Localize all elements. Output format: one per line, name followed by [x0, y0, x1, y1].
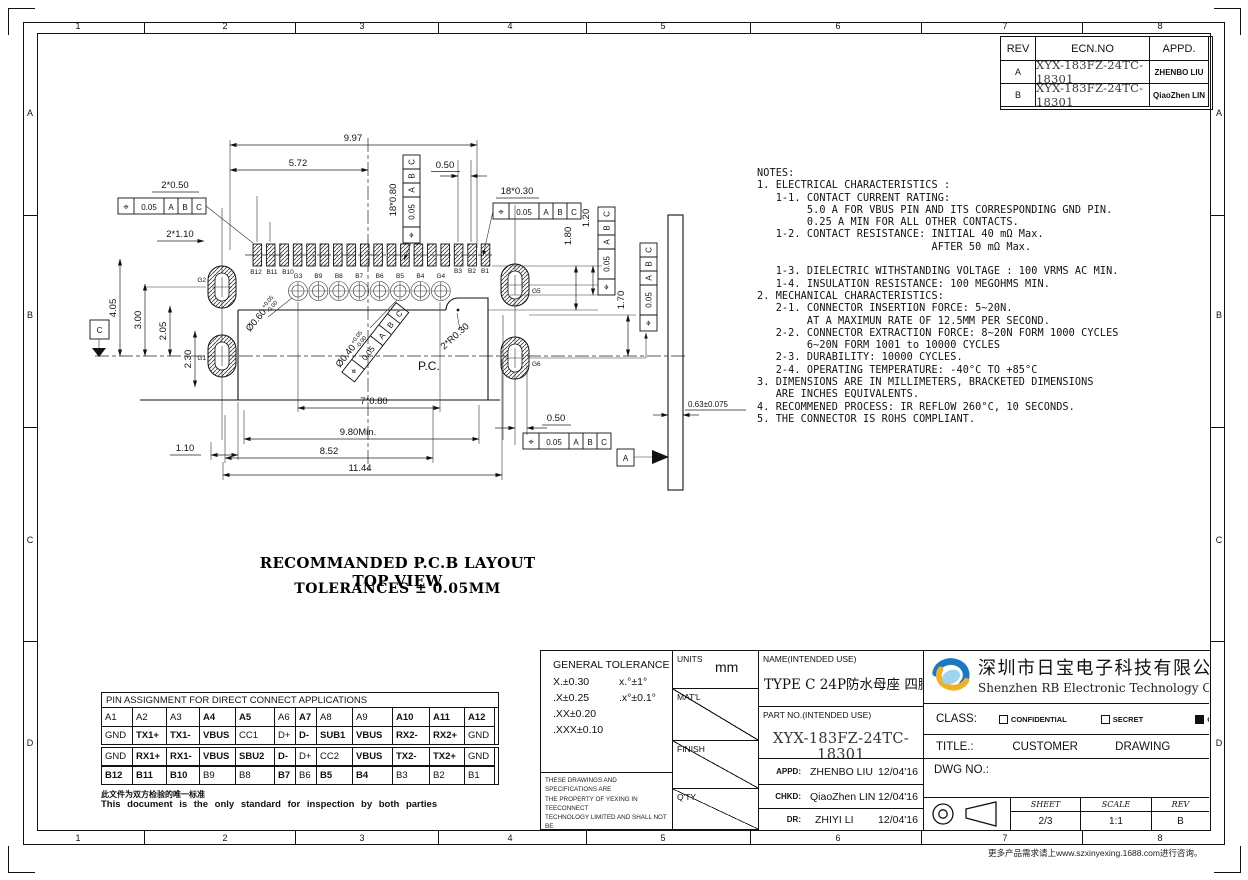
- pin-cell: A1: [102, 708, 133, 726]
- class-option-label: GENERAL: [1207, 715, 1209, 724]
- title-row: TITLE.: CUSTOMER DRAWING: [924, 735, 1209, 759]
- part-number-cell: PART NO.(INTENDED USE) XYX-183FZ-24TC-18…: [759, 707, 924, 759]
- fcf-a: A: [645, 275, 654, 281]
- pin-cell: B1: [465, 766, 495, 784]
- pin-cell: B4: [353, 766, 393, 784]
- checked-date: 12/04'16: [878, 791, 918, 803]
- zone-tick: [750, 22, 751, 33]
- zone-col-label: 8: [1150, 21, 1170, 31]
- pin-cell: GND: [465, 748, 495, 766]
- zone-col-label: 7: [995, 21, 1015, 31]
- datum-c-flag: C: [90, 320, 109, 357]
- zone-tick: [295, 831, 296, 845]
- pin-cell: B2: [430, 766, 465, 784]
- datum-a-flag: A: [617, 449, 669, 466]
- dim-4.05: 4.05: [108, 299, 119, 318]
- checked-name: QiaoZhen LIN: [810, 791, 875, 803]
- pin-cell: B11: [133, 766, 167, 784]
- zone-tick: [1211, 427, 1225, 428]
- fcf-frame: ⌖ 0.05 A B C: [118, 198, 206, 214]
- pin-cell: GND: [102, 748, 133, 766]
- checked-row: CHKD: QiaoZhen LIN 12/04'16: [759, 785, 924, 809]
- pin-cell: A6: [275, 708, 296, 726]
- smt-pad: [253, 244, 262, 266]
- footer-note: 更多产品需求请上www.szxinyexing.1688.com进行咨询。: [988, 847, 1212, 859]
- pin-cell: B6: [296, 766, 317, 784]
- drawn-row: DR: ZHIYI LI 12/04'16: [759, 809, 924, 830]
- position-symbol: ⌖: [123, 202, 129, 213]
- fcf-a: A: [603, 239, 612, 245]
- pin-cell: VBUS: [353, 748, 393, 766]
- fcf-b: B: [645, 261, 654, 266]
- pin-cell: B8: [236, 766, 275, 784]
- rev-value: A: [1001, 61, 1036, 84]
- zone-tick: [586, 22, 587, 33]
- zone-row-label: C: [1213, 535, 1225, 545]
- zone-tick: [1082, 831, 1083, 845]
- class-label: CLASS:: [936, 713, 977, 725]
- zone-row-label: B: [24, 310, 36, 320]
- zone-col-label: 1: [68, 833, 88, 843]
- rev-cell: REV B: [1152, 798, 1209, 830]
- pin-cell: B3: [393, 766, 430, 784]
- checkbox-filled-icon: [1195, 715, 1204, 724]
- smt-pad: [401, 244, 410, 266]
- tolerance-value: .XX±0.20: [553, 706, 619, 722]
- smt-pad: [454, 244, 463, 266]
- pin-cell: D-: [296, 726, 317, 744]
- pin-cell: A3: [167, 708, 200, 726]
- fcf-tol: 0.05: [603, 256, 612, 272]
- corner-mark: [1214, 846, 1241, 873]
- pin-cell: VBUS: [200, 726, 236, 744]
- pin-cell: A12: [465, 708, 495, 726]
- dim-1.20: 1.20: [581, 209, 592, 228]
- zone-row-label: A: [24, 108, 36, 118]
- zone-tick: [921, 831, 922, 845]
- hole-label: B9: [314, 273, 322, 280]
- position-symbol: ⌖: [498, 207, 504, 218]
- dim-0.63: 0.63±0.075: [688, 400, 729, 409]
- pin-cell: B5: [317, 766, 353, 784]
- smt-pad: [428, 244, 437, 266]
- fcf-frame: ⌖ 0.05 A B C: [523, 433, 611, 449]
- zone-col-label: 2: [215, 21, 235, 31]
- smt-pad: [441, 244, 450, 266]
- pin-cell: SBU2: [236, 748, 275, 766]
- fcf-b: B: [385, 320, 395, 330]
- scale-cell: SCALE 1:1: [1081, 798, 1152, 830]
- name-label: NAME(INTENDED USE): [763, 654, 857, 664]
- dim-0.50-bottom: 0.50: [547, 413, 566, 424]
- revision-table: REV ECN.NO APPD. A XYX-183FZ-24TC-18301 …: [1000, 36, 1213, 110]
- zone-tick: [586, 831, 587, 845]
- dim-11.44: 11.44: [348, 463, 371, 474]
- legal-notice-cell: THESE DRAWINGS AND SPECIFICATIONS ARE TH…: [541, 773, 673, 830]
- class-row: CLASS: CONFIDENTIAL SECRET GENERAL: [924, 704, 1209, 735]
- pin-cell: TX1+: [133, 726, 167, 744]
- smt-pad: [468, 244, 477, 266]
- fcf-tol: 0.05: [408, 204, 417, 220]
- through-hole-row: [289, 282, 451, 301]
- general-tolerance-cell: GENERAL TOLERANCE X.±0.30 x.°±1° .X±0.25…: [541, 651, 673, 773]
- fcf-tol: 0.05: [516, 208, 532, 217]
- checked-label: CHKD:: [759, 792, 801, 801]
- smt-pad: [347, 244, 356, 266]
- fcf-c: C: [601, 438, 607, 447]
- smt-pad: [360, 244, 369, 266]
- name-cell: NAME(INTENDED USE) TYPE C 24P防水母座 四脚DIP: [759, 651, 924, 707]
- dim-2xR0.30: 2*R0.30: [439, 321, 472, 352]
- company-name-cn: 深圳市日宝电子科技有限公司: [978, 654, 1209, 680]
- units-value: mm: [715, 659, 738, 675]
- hole-label: B8: [335, 273, 343, 280]
- pin-cell: RX2-: [393, 726, 430, 744]
- dim-9.80min: 9.80Min.: [340, 427, 376, 438]
- zone-col-label: 4: [500, 21, 520, 31]
- general-tolerance-title: GENERAL TOLERANCE: [553, 659, 672, 671]
- zone-col-label: 3: [352, 21, 372, 31]
- zone-tick: [144, 831, 145, 845]
- fcf-a: A: [573, 438, 579, 447]
- pin-cell: D-: [275, 748, 296, 766]
- ecn-value: XYX-183FZ-24TC-18301: [1036, 84, 1150, 107]
- zone-tick: [1211, 641, 1225, 642]
- fcf-a: A: [543, 208, 549, 217]
- pin-cell: B7: [275, 766, 296, 784]
- zone-col-label: 6: [828, 21, 848, 31]
- pin-cell: B10: [167, 766, 200, 784]
- hole-label: B4: [416, 273, 424, 280]
- pin-cell: A8: [317, 708, 353, 726]
- datum-c-label: C: [97, 326, 103, 335]
- smt-pad: [293, 244, 302, 266]
- pin-assignment-table: PIN ASSIGNMENT FOR DIRECT CONNECT APPLIC…: [101, 692, 499, 785]
- smt-pad: [307, 244, 316, 266]
- material-cell: MAT'L: [673, 689, 759, 741]
- pcb-layout-drawing: B12 B11 B10 B3 B2 B1 G3 B9 B8 B7 B6 B5 B…: [40, 110, 750, 550]
- position-symbol: ⌖: [407, 232, 418, 238]
- tolerance-value: X.±0.30: [553, 674, 619, 690]
- smt-pad: [320, 244, 329, 266]
- checkbox-empty-icon: [999, 715, 1008, 724]
- hole-label: B6: [376, 273, 384, 280]
- pin-cell: CC2: [317, 748, 353, 766]
- drawn-date: 12/04'16: [878, 814, 918, 826]
- fcf-tol: 0.05: [546, 438, 562, 447]
- zone-row-label: C: [24, 535, 36, 545]
- fcf-b: B: [587, 438, 592, 447]
- pin-cell: A7: [296, 708, 317, 726]
- class-option-general: GENERAL: [1195, 715, 1209, 724]
- corner-mark: [8, 846, 35, 873]
- pad-label: B3: [454, 268, 462, 275]
- name-value: TYPE C 24P防水母座 四脚DIP: [764, 673, 924, 693]
- fcf-frame: ⌖ 0.05 A B C: [493, 203, 581, 219]
- dwg-no-label: DWG NO.:: [934, 764, 989, 776]
- pad-label: B2: [468, 268, 476, 275]
- dim-8.52: 8.52: [320, 446, 339, 457]
- position-symbol: ⌖: [602, 284, 613, 290]
- fcf-a: A: [408, 187, 417, 193]
- fcf-b: B: [408, 173, 417, 178]
- pin-cell: A4: [200, 708, 236, 726]
- zone-tick: [144, 22, 145, 33]
- class-option-label: CONFIDENTIAL: [1011, 715, 1067, 724]
- fcf-a: A: [377, 331, 388, 341]
- pin-cell: A2: [133, 708, 167, 726]
- fcf-c: C: [571, 208, 577, 217]
- scale-label: SCALE: [1081, 798, 1151, 812]
- fcf-c: C: [196, 203, 202, 212]
- zone-row-label: D: [1213, 738, 1225, 748]
- fcf-a: A: [168, 203, 174, 212]
- pin-cell: D+: [296, 748, 317, 766]
- dia-0.60-text: Ø0.60: [244, 307, 269, 334]
- fcf-b: B: [603, 225, 612, 230]
- company-logo: [928, 654, 974, 700]
- notes-text: NOTES: 1. ELECTRICAL CHARACTERISTICS : 1…: [757, 168, 1209, 426]
- pin-cell: VBUS: [353, 726, 393, 744]
- rev-value: B: [1001, 84, 1036, 107]
- dim-1.10: 1.10: [176, 443, 195, 454]
- dim-18x0.30: 18*0.30: [501, 186, 534, 197]
- zone-tick: [438, 831, 439, 845]
- pin-cell: A10: [393, 708, 430, 726]
- tolerance-value: .X±0.25: [553, 690, 619, 706]
- zone-tick: [438, 22, 439, 33]
- zone-col-label: 6: [828, 833, 848, 843]
- title-label: TITLE.:: [936, 741, 974, 753]
- zone-row-label: D: [24, 738, 36, 748]
- drawn-name: ZHIYI LI: [815, 814, 854, 826]
- dia-0.60-callout: Ø0.60 +0.05 -0.00: [244, 295, 280, 335]
- zone-tick: [23, 215, 37, 216]
- zone-col-label: 3: [352, 833, 372, 843]
- dim-1.70: 1.70: [616, 291, 627, 310]
- fcf-c: C: [603, 211, 612, 217]
- part-number-value: XYX-183FZ-24TC-18301: [759, 731, 923, 759]
- fcf-frame-vertical: C B A 0.05 ⌖: [640, 243, 657, 331]
- hole-label: B5: [396, 273, 404, 280]
- approved-name: ZHENBO LIU: [810, 766, 873, 778]
- zone-col-label: 8: [1150, 833, 1170, 843]
- dim-9.97: 9.97: [344, 133, 363, 144]
- hole-label: G4: [436, 273, 445, 280]
- zone-col-label: 1: [68, 21, 88, 31]
- pad-label: B12: [250, 269, 262, 276]
- fcf-tol: 0.05: [141, 203, 157, 212]
- slot-g1: G1: [197, 335, 236, 377]
- dim-2.05: 2.05: [158, 322, 169, 341]
- leader-line: [206, 206, 253, 243]
- pin-table-title: PIN ASSIGNMENT FOR DIRECT CONNECT APPLIC…: [101, 692, 499, 708]
- class-option-secret: SECRET: [1101, 715, 1143, 724]
- pin-cell: GND: [102, 726, 133, 744]
- appd-col-header: APPD.: [1150, 37, 1209, 61]
- units-cell: UNITS mm: [673, 651, 759, 689]
- pin-cell: TX2+: [430, 748, 465, 766]
- zone-tick: [1082, 22, 1083, 33]
- slot-label: G1: [197, 355, 206, 362]
- pin-cell: TX2-: [393, 748, 430, 766]
- slot-label: G2: [197, 277, 206, 284]
- appd-value: QiaoZhen LIN: [1150, 84, 1209, 107]
- pin-cell: RX1-: [167, 748, 200, 766]
- fcf-frame-vertical: C B A 0.05 ⌖: [403, 155, 420, 243]
- approved-date: 12/04'16: [878, 766, 918, 778]
- pin-cell: A5: [236, 708, 275, 726]
- slot-label: G6: [532, 361, 541, 368]
- radius-callout: 2*R0.30: [439, 321, 472, 352]
- dim-2x0.50: 2*0.50: [161, 180, 188, 191]
- pin-cell: TX1-: [167, 726, 200, 744]
- dim-3.00: 3.00: [133, 311, 144, 330]
- zone-col-label: 5: [653, 833, 673, 843]
- title-value: CUSTOMER DRAWING: [974, 741, 1209, 753]
- appd-value: ZHENBO LIU: [1150, 61, 1209, 84]
- fcf-c: C: [408, 159, 417, 165]
- drawn-label: DR:: [759, 815, 801, 824]
- zone-tick: [1211, 215, 1225, 216]
- approved-label: APPD:: [759, 767, 801, 776]
- pin-cell: D+: [275, 726, 296, 744]
- pin-cell: GND: [465, 726, 495, 744]
- fcf-c: C: [645, 247, 654, 253]
- zone-row-label: A: [1213, 108, 1225, 118]
- inspection-note-en: This document is the only standard for i…: [101, 799, 437, 810]
- zone-col-label: 2: [215, 833, 235, 843]
- fcf-b: B: [182, 203, 187, 212]
- pin-cell: RX1+: [133, 748, 167, 766]
- rev-label: REV: [1152, 798, 1209, 812]
- sheet-cell: SHEET 2/3: [1011, 798, 1081, 830]
- dim-5.72: 5.72: [289, 158, 308, 169]
- side-view-bar: [668, 215, 683, 490]
- tolerance-value: .XXX±0.10: [553, 722, 619, 738]
- smt-pad: [387, 244, 396, 266]
- zone-col-label: 5: [653, 21, 673, 31]
- position-symbol: ⌖: [644, 320, 655, 326]
- dim-1.80: 1.80: [563, 227, 574, 246]
- smt-pad: [414, 244, 423, 266]
- zone-tick: [295, 22, 296, 33]
- sheet-label: SHEET: [1011, 798, 1080, 812]
- smt-pad: [280, 244, 289, 266]
- fcf-b: B: [557, 208, 562, 217]
- finish-cell: FINISH: [673, 741, 759, 789]
- caption-tolerances: TOLERANCES ± 0.05MM: [240, 581, 555, 597]
- dim-0.50-top: 0.50: [436, 160, 455, 171]
- quantity-cell: Q'TY: [673, 789, 759, 830]
- datum-a-label: A: [623, 454, 629, 463]
- checkbox-empty-icon: [1101, 715, 1110, 724]
- quantity-label: Q'TY: [677, 792, 696, 802]
- material-label: MAT'L: [677, 692, 701, 702]
- pin-cell: CC1: [236, 726, 275, 744]
- projection-cell: [924, 798, 1011, 830]
- class-option-confidential: CONFIDENTIAL: [999, 715, 1067, 724]
- fcf-tol: 0.05: [360, 344, 377, 362]
- tolerance-value: .x°±0.1°: [619, 690, 673, 706]
- third-angle-projection-icon: [928, 799, 1008, 829]
- smt-pad: [266, 244, 275, 266]
- pc-label: P.C.: [418, 359, 440, 373]
- fcf-tol: 0.05: [645, 292, 654, 308]
- units-label: UNITS: [677, 654, 703, 664]
- rev-col-header: REV: [1001, 37, 1036, 61]
- rev-value: B: [1152, 812, 1209, 830]
- smt-pad: [374, 244, 383, 266]
- scale-value: 1:1: [1081, 812, 1151, 830]
- company-name-en: Shenzhen RB Electronic Technology Co., L…: [978, 681, 1209, 695]
- finish-label: FINISH: [677, 744, 705, 754]
- company-cell: 深圳市日宝电子科技有限公司 Shenzhen RB Electronic Tec…: [924, 651, 1209, 704]
- pin-cell: VBUS: [200, 748, 236, 766]
- slot-label: G5: [532, 288, 541, 295]
- pin-cell: A9: [353, 708, 393, 726]
- title-block: GENERAL TOLERANCE X.±0.30 x.°±1° .X±0.25…: [540, 650, 1211, 831]
- pin-cell: B12: [102, 766, 133, 784]
- zone-tick: [750, 831, 751, 845]
- zone-row-label: B: [1213, 310, 1225, 320]
- part-number-label: PART NO.(INTENDED USE): [763, 710, 871, 720]
- zone-col-label: 7: [995, 833, 1015, 843]
- pad-label: B11: [266, 269, 277, 276]
- dwg-no-cell: DWG NO.:: [924, 759, 1209, 798]
- smt-pad: [334, 244, 343, 266]
- pad-label: B1: [481, 268, 489, 275]
- pin-cell: A11: [430, 708, 465, 726]
- zone-tick: [23, 641, 37, 642]
- zone-tick: [23, 427, 37, 428]
- fcf-frame-vertical: C B A 0.05 ⌖: [598, 207, 615, 295]
- position-symbol: ⌖: [528, 437, 534, 448]
- dim-2.30: 2.30: [183, 350, 194, 369]
- pin-cell: RX2+: [430, 726, 465, 744]
- dim-18x0.80: 18*0.80: [388, 184, 399, 217]
- zone-tick: [921, 22, 922, 33]
- approved-row: APPD: ZHENBO LIU 12/04'16: [759, 759, 924, 785]
- class-option-label: SECRET: [1113, 715, 1143, 724]
- sheet-value: 2/3: [1011, 812, 1080, 830]
- legal-notice-text: THESE DRAWINGS AND SPECIFICATIONS ARE TH…: [541, 773, 672, 830]
- pad-label: B10: [282, 269, 294, 276]
- pin-cell: SUB1: [317, 726, 353, 744]
- zone-col-label: 4: [500, 833, 520, 843]
- dim-7x0.80: 7*0.80: [360, 396, 387, 407]
- tolerance-value: x.°±1°: [619, 674, 673, 690]
- smt-pad: [481, 244, 490, 266]
- dia-0.40-callout: Ø0.40 +0.05 -0.00 ⌖ 0.05 A B C: [332, 295, 408, 382]
- dim-2x1.10: 2*1.10: [166, 229, 193, 240]
- position-symbol: ⌖: [348, 366, 360, 378]
- hole-label: G3: [294, 273, 303, 280]
- drawing-sheet: 1 2 3 4 5 6 7 8 1 2 3 4 5 6 7 8 A B C D …: [0, 0, 1248, 880]
- hole-label: B7: [355, 273, 363, 280]
- pin-cell: B9: [200, 766, 236, 784]
